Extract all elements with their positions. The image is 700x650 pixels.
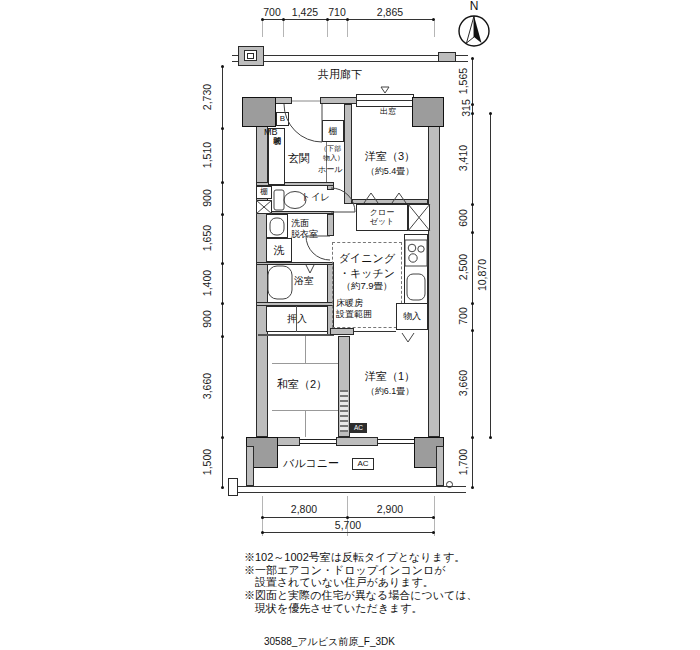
dim-left-2: 900	[201, 178, 213, 218]
dim-bottom-total: 5,700	[323, 519, 373, 531]
toilet-door-arc-icon	[331, 188, 355, 212]
toilet-bowl-icon	[284, 192, 306, 209]
pipe-space-x-icon	[408, 204, 430, 231]
dim-left-1: 1,510	[201, 135, 213, 175]
dim-left-3: 1,650	[201, 218, 213, 258]
floor-plan-page: 700 1,425 710 2,865 N 共用廊下	[0, 0, 700, 650]
dim-left-6: 3,660	[201, 366, 213, 406]
toilet-tank-icon	[274, 190, 284, 210]
dim-left-4: 1,400	[201, 263, 213, 303]
toilet-niche-x-icon	[256, 200, 272, 214]
dim-line-bottom-2	[262, 532, 434, 533]
dim-right-4: 2,500	[457, 247, 469, 287]
entrance-door-arc-icon	[284, 104, 322, 142]
bath-door-mark-icon	[306, 265, 314, 273]
dim-right-1: 315	[460, 88, 472, 128]
dim-bottom-1: 2,900	[365, 503, 415, 515]
dim-line-right-inner	[472, 58, 473, 487]
dim-right-2: 3,410	[457, 138, 469, 178]
note-line-1: ※102～1002号室は反転タイプとなります。	[244, 551, 684, 564]
dim-bottom-0: 2,800	[279, 503, 329, 515]
dim-line-right-outer	[490, 113, 491, 437]
note-line-3: 設置されていない住戸があります。	[244, 576, 684, 589]
bay-window-mark-icon	[381, 87, 389, 93]
kitchen-sink-icon	[407, 274, 425, 300]
drawing-id-label: 30588_アルビス前原_F_3DK	[264, 636, 395, 648]
dim-left-0: 2,730	[201, 77, 213, 117]
dim-right-7: 1,700	[457, 442, 469, 482]
dim-left-7: 1,500	[201, 442, 213, 482]
stove-icon	[405, 240, 427, 266]
dim-right-total: 10,870	[476, 250, 488, 300]
washroom-door-arc-icon	[306, 236, 330, 260]
monoire-door-mark-icon	[402, 333, 414, 342]
dim-right-5: 700	[457, 296, 469, 336]
note-line-4: ※図面と実際の住宅が異なる場合については、	[244, 589, 684, 602]
vanity-sink-icon	[270, 218, 284, 235]
closet-hanger-icon	[364, 193, 406, 203]
note-line-2: ※一部エアコン・ドロップインコンロが	[244, 564, 684, 577]
bathtub-icon	[268, 266, 292, 299]
dim-right-6: 3,660	[457, 363, 469, 403]
note-line-5: 現状を優先させていただきます。	[244, 602, 684, 615]
dim-right-3: 600	[457, 198, 469, 238]
dim-left-5: 900	[201, 299, 213, 339]
notes-block: ※102～1002号室は反転タイプとなります。 ※一部エアコン・ドロップインコン…	[244, 551, 684, 614]
